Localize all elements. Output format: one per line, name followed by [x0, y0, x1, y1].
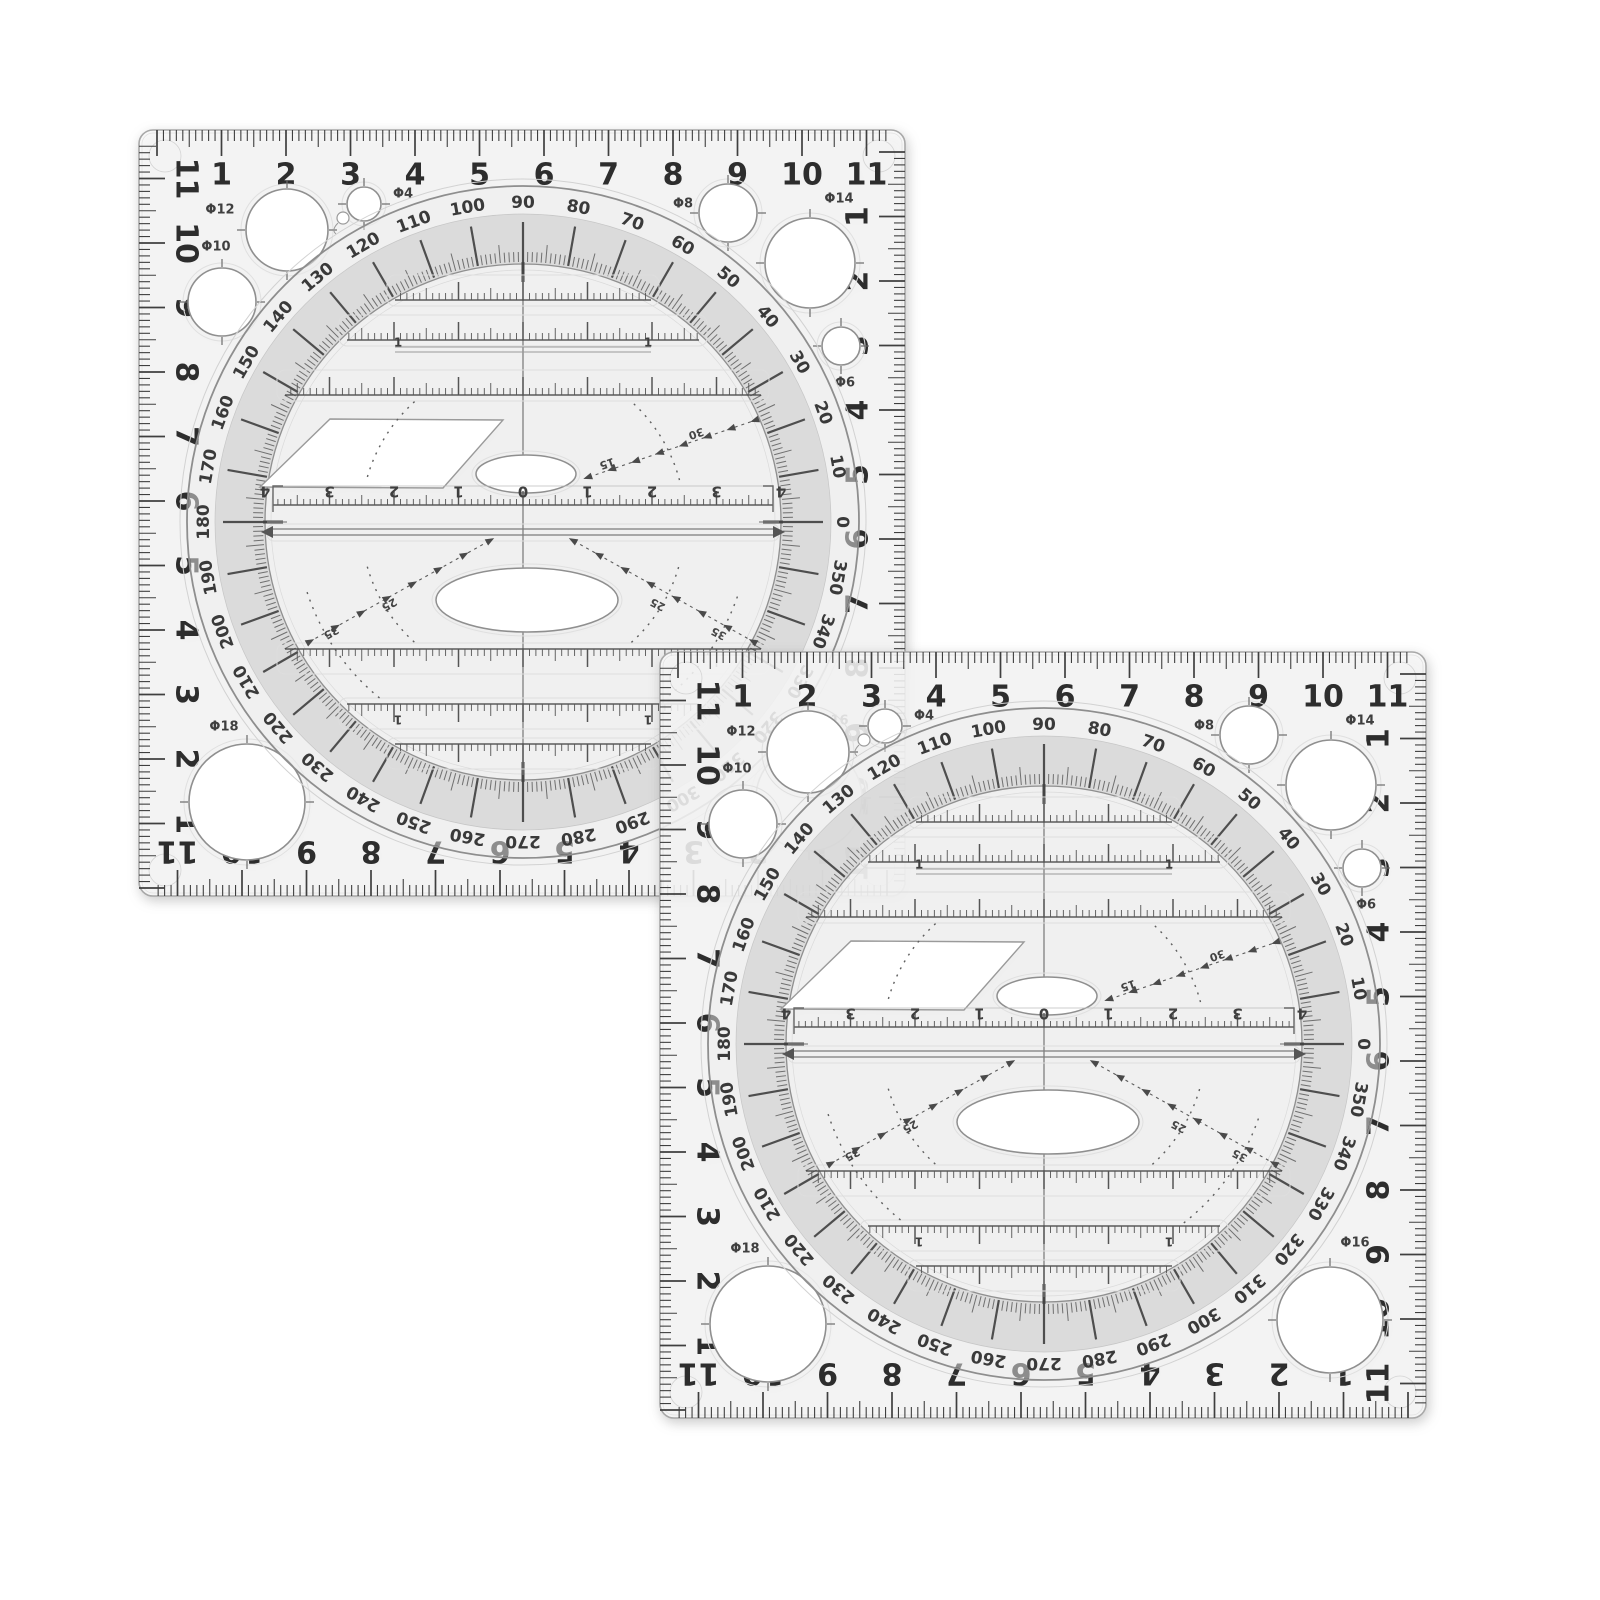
large-ellipse-cutout: [957, 1090, 1139, 1154]
edge-number: 4: [169, 620, 204, 641]
scale-number: 3: [711, 483, 721, 501]
circle-hole: [347, 187, 381, 221]
edge-number: 1: [732, 680, 753, 715]
degree-label: 80: [565, 196, 592, 220]
diameter-label: Φ16: [1340, 1236, 1369, 1251]
edge-number: 7: [598, 158, 619, 193]
diameter-label: Φ12: [205, 203, 234, 218]
edge-number: 11: [169, 158, 204, 200]
diameter-label: Φ6: [1356, 898, 1376, 913]
edge-number: 10: [781, 158, 823, 193]
edge-number: 9: [296, 834, 317, 869]
edge-number: 10: [1302, 680, 1344, 715]
circle-hole: [1286, 740, 1376, 830]
edge-number: 10: [169, 222, 204, 264]
diameter-label: Φ14: [1345, 714, 1374, 729]
edge-number: 2: [797, 680, 818, 715]
unit-mark: 1: [915, 1235, 923, 1249]
drawing-template-front: 1234567891011123456789101112345678910111…: [656, 648, 1430, 1422]
unit-mark: 1: [915, 858, 923, 872]
degree-label: 270: [1026, 1353, 1062, 1373]
degree-label: 10: [1346, 975, 1370, 1002]
circle-hole: [822, 327, 860, 365]
edge-number: 11: [1362, 1363, 1397, 1405]
unit-mark: 1: [394, 336, 402, 350]
scale-number: 2: [647, 483, 657, 501]
edge-number: 3: [169, 684, 204, 705]
edge-number: 11: [157, 834, 199, 869]
scale-number: 1: [453, 483, 463, 501]
edge-number: 4: [841, 400, 876, 421]
diameter-label: Φ10: [722, 762, 751, 777]
scale-number: 3: [845, 1005, 855, 1023]
degree-label: 90: [511, 193, 535, 213]
diameter-label: Φ4: [393, 187, 413, 202]
scale-number: 2: [1168, 1005, 1178, 1023]
scale-number: 3: [324, 483, 334, 501]
edge-number: 2: [1269, 1356, 1290, 1391]
template-body: 1234567891011123456789101112345678910111…: [660, 652, 1426, 1418]
edge-number: 2: [169, 749, 204, 770]
scale-number: 0: [518, 483, 528, 501]
circle-hole: [868, 709, 902, 743]
diameter-label: Φ14: [824, 192, 853, 207]
edge-number: 11: [846, 158, 888, 193]
scale-number: 0: [1039, 1005, 1049, 1023]
diameter-label: Φ18: [209, 720, 238, 735]
degree-label: 10: [825, 453, 849, 480]
circle-hole: [188, 268, 256, 336]
diameter-label: Φ18: [730, 1242, 759, 1257]
edge-number: 9: [817, 1356, 838, 1391]
scale-number: 1: [1103, 1005, 1113, 1023]
edge-number: 2: [690, 1271, 725, 1292]
scale-number: 4: [776, 483, 786, 501]
unit-mark: 1: [644, 713, 652, 727]
diameter-label: Φ10: [201, 240, 230, 255]
edge-number: 3: [690, 1206, 725, 1227]
edge-number: 3: [1204, 1356, 1225, 1391]
edge-number: 2: [276, 158, 297, 193]
product-photo: 1234567891011123456789101112345678910111…: [0, 0, 1600, 1600]
degree-label: 80: [1086, 718, 1113, 742]
diameter-label: Φ6: [835, 376, 855, 391]
circle-hole: [765, 218, 855, 308]
scale-number: 4: [781, 1005, 791, 1023]
scale-number: 2: [910, 1005, 920, 1023]
edge-number: 7: [1119, 680, 1140, 715]
edge-number: 8: [663, 158, 684, 193]
edge-number: 8: [361, 834, 382, 869]
diameter-label: Φ4: [914, 709, 934, 724]
diameter-label: Φ8: [673, 197, 693, 212]
unit-mark: 1: [394, 713, 402, 727]
edge-number: 1: [1362, 728, 1397, 749]
unit-mark: 1: [1165, 1235, 1173, 1249]
edge-number: 11: [690, 680, 725, 722]
scale-number: 3: [1232, 1005, 1242, 1023]
unit-mark: 1: [644, 336, 652, 350]
degree-label: 180: [194, 504, 214, 540]
edge-number: 11: [678, 1356, 720, 1391]
scale-number: 2: [389, 483, 399, 501]
degree-label: 180: [715, 1026, 735, 1062]
edge-number: 1: [841, 206, 876, 227]
edge-number: 8: [1362, 1180, 1397, 1201]
degree-label: 270: [505, 831, 541, 851]
edge-number: 1: [211, 158, 232, 193]
edge-number: 8: [690, 884, 725, 905]
edge-number: 8: [882, 1356, 903, 1391]
circle-hole: [1277, 1267, 1383, 1373]
edge-number: 10: [690, 744, 725, 786]
edge-number: 4: [690, 1142, 725, 1163]
degree-label: 0: [832, 516, 852, 528]
edge-number: 8: [169, 362, 204, 383]
diameter-label: Φ8: [1194, 719, 1214, 734]
scale-number: 1: [974, 1005, 984, 1023]
scale-number: 4: [1297, 1005, 1307, 1023]
edge-number: 11: [1367, 680, 1409, 715]
large-ellipse-cutout: [436, 568, 618, 632]
circle-hole: [709, 790, 777, 858]
scale-number: 4: [260, 483, 270, 501]
scale-number: 1: [582, 483, 592, 501]
degree-label: 90: [1032, 715, 1056, 735]
circle-hole: [1343, 849, 1381, 887]
diameter-label: Φ12: [726, 725, 755, 740]
edge-number: 4: [1362, 922, 1397, 943]
unit-mark: 1: [1165, 858, 1173, 872]
degree-label: 0: [1353, 1038, 1373, 1050]
edge-number: 8: [1184, 680, 1205, 715]
